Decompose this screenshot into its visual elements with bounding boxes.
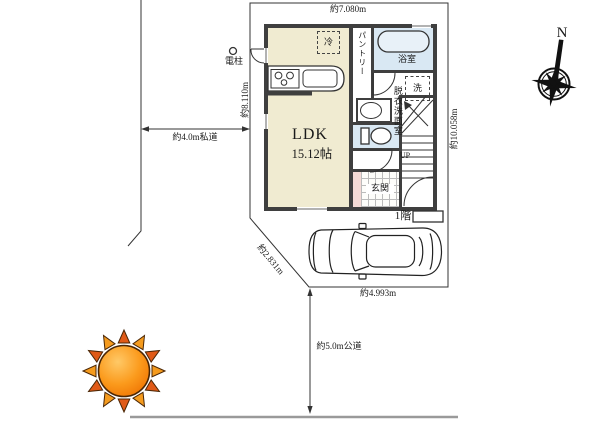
private-road-label: 約4.0m私道 <box>155 133 235 143</box>
floor-label: 1階 <box>385 210 421 222</box>
ldk-name: LDK <box>280 126 340 144</box>
stairs-up-label: UP <box>394 152 416 161</box>
dimension-top: 約7.080m <box>308 5 388 15</box>
wall-segment <box>371 70 433 73</box>
car-icon <box>309 224 442 280</box>
dimension-right: 約10.058m <box>450 91 460 167</box>
utility-pole-icon <box>230 48 237 55</box>
bath-label: 浴室 <box>392 55 422 65</box>
compass-north-label: N <box>550 25 574 42</box>
entrance-label: 玄関 <box>366 184 394 194</box>
room-ldk <box>268 28 349 207</box>
dimension-bottom: 約4.993m <box>338 289 418 299</box>
private-road-edge <box>128 0 141 246</box>
window <box>297 207 327 211</box>
window <box>264 114 268 129</box>
washroom-label: 脱衣洗面室 <box>392 86 402 178</box>
compass-rose-icon <box>531 40 578 108</box>
site-plan-canvas: 冷 洗 <box>0 0 600 424</box>
utility-pole-label: 電柱 <box>219 57 249 67</box>
entrance-side-strip <box>352 172 361 207</box>
pantry-label: パントリー <box>357 31 366 111</box>
fridge-label: 冷 <box>324 38 333 48</box>
washer-label: 洗 <box>413 84 422 94</box>
dimension-diagonal: 約2.831m <box>244 230 297 290</box>
sun-icon <box>83 330 165 412</box>
public-road-label: 約5.0m公道 <box>307 342 371 352</box>
washer-icon: 洗 <box>405 76 430 101</box>
window <box>412 24 431 28</box>
ldk-size: 15.12帖 <box>277 148 347 162</box>
window <box>264 48 268 63</box>
wall-segment <box>349 28 353 207</box>
dimension-left: 約8.110m <box>241 65 251 135</box>
private-road-dimension-arrow <box>141 126 250 131</box>
fridge-icon: 冷 <box>317 31 340 54</box>
